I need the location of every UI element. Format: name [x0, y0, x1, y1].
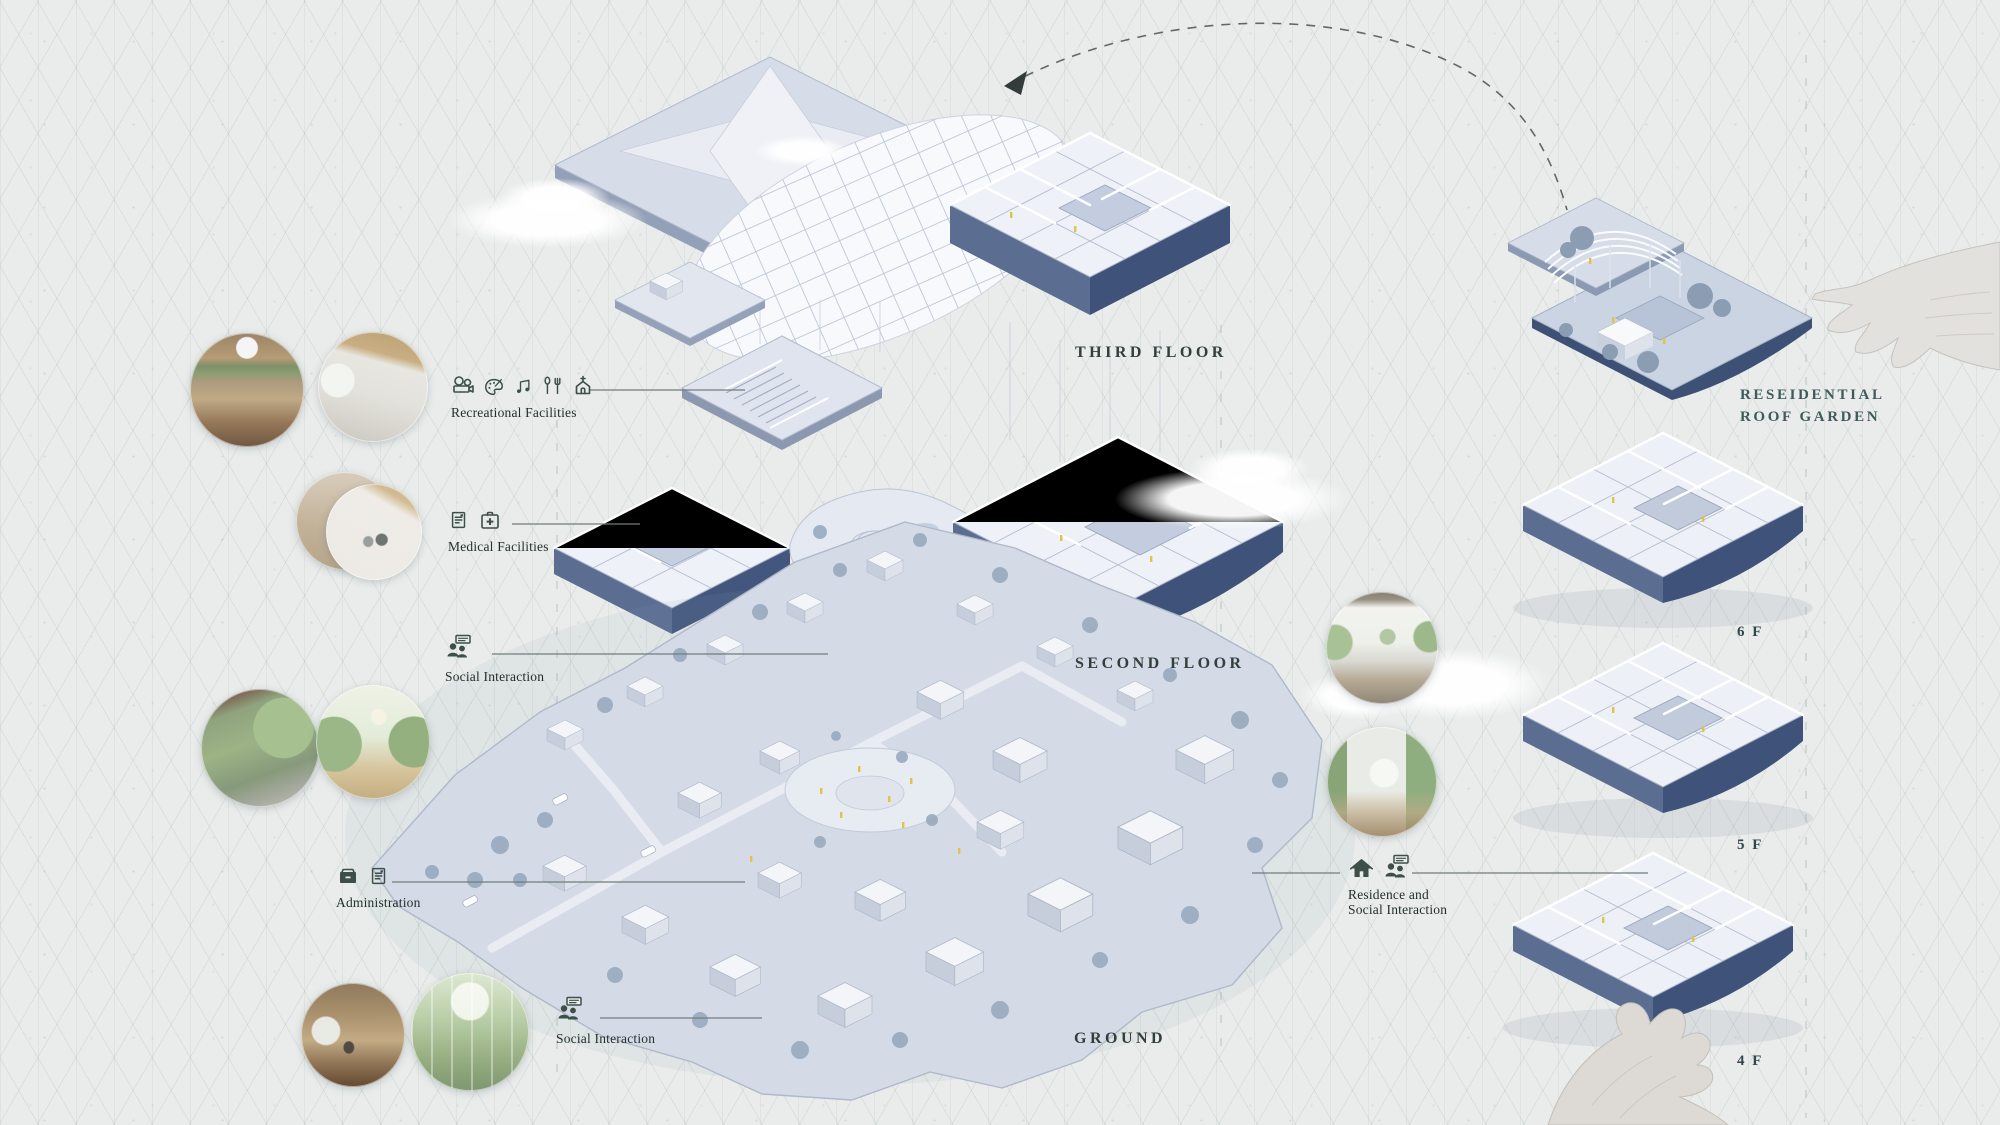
- cloud: [500, 178, 610, 218]
- legend-residence-line1: Residence and: [1348, 887, 1447, 902]
- photo-greenhouse: [411, 973, 529, 1091]
- legend-social-1-label: Social Interaction: [445, 669, 544, 685]
- dining-icon: [541, 374, 563, 398]
- legend-medical-label: Medical Facilities: [448, 539, 549, 555]
- building-artwork: [0, 0, 2000, 1125]
- photo-wood-lounge: [301, 983, 405, 1087]
- exploded-axonometric-diagram: THIRD FLOOR SECOND FLOOR GROUND RESEIDEN…: [0, 0, 2000, 1125]
- second-floor-title: SECOND FLOOR: [1075, 655, 1245, 673]
- photo-bedroom: [1327, 727, 1437, 837]
- photo-music-room: [190, 333, 304, 447]
- music-notes-icon: [513, 376, 533, 398]
- legend-residence-line2: Social Interaction: [1348, 902, 1447, 917]
- legend-social-2-icons: [556, 1000, 655, 1024]
- legend-administration-icons: [336, 864, 421, 888]
- legend-medical: Medical Facilities: [448, 508, 549, 555]
- arrowhead-icon: [1004, 71, 1027, 95]
- legend-social-1-icons: [445, 638, 544, 662]
- legend-recreational: Recreational Facilities: [451, 374, 595, 421]
- house-icon: [1348, 855, 1375, 882]
- photo-lantern-garden: [316, 685, 430, 799]
- palette-icon: [483, 376, 505, 398]
- legend-administration: Administration: [336, 864, 421, 911]
- first-aid-kit-icon: [478, 508, 502, 532]
- pointing-hand: [1812, 242, 2000, 370]
- ground-title: GROUND: [1074, 1030, 1166, 1048]
- cloud: [755, 136, 850, 166]
- photo-gallery: [318, 332, 428, 442]
- legend-recreational-icons: [451, 374, 595, 398]
- legend-social-2: Social Interaction: [556, 1000, 655, 1047]
- level-plate-4f: [1503, 853, 1803, 1048]
- roof-garden-plate: [1508, 198, 1812, 400]
- chapel-icon: [571, 374, 595, 398]
- cloud: [1190, 448, 1310, 490]
- level-label-4f: 4 F: [1737, 1053, 1763, 1070]
- medical-report-icon: [448, 508, 470, 532]
- legend-social-1: Social Interaction: [445, 638, 544, 685]
- level-label-6f: 6 F: [1737, 624, 1763, 641]
- photo-living-room: [1326, 592, 1438, 704]
- archive-drawer-icon: [336, 864, 360, 888]
- roof-garden-title-line1: RESEIDENTIAL: [1740, 384, 1885, 406]
- legend-medical-icons: [448, 508, 549, 532]
- people-conversation-icon: [556, 994, 586, 1024]
- document-icon: [368, 864, 390, 888]
- legend-social-2-label: Social Interaction: [556, 1031, 655, 1047]
- third-floor-title: THIRD FLOOR: [1075, 344, 1227, 362]
- legend-residence-icons: [1348, 858, 1447, 882]
- third-floor-model: [555, 57, 1230, 478]
- legend-recreational-label: Recreational Facilities: [451, 405, 595, 421]
- level-label-5f: 5 F: [1737, 837, 1763, 854]
- level-plate-6f: [1513, 433, 1813, 628]
- legend-administration-label: Administration: [336, 895, 421, 911]
- people-conversation-icon: [445, 632, 475, 662]
- photo-courtyard: [201, 689, 319, 807]
- projector-icon: [451, 374, 475, 398]
- roof-garden-title: RESEIDENTIAL ROOF GARDEN: [1740, 384, 1885, 428]
- roof-garden-title-line2: ROOF GARDEN: [1740, 406, 1885, 428]
- people-conversation-icon: [1383, 852, 1413, 882]
- legend-residence: Residence and Social Interaction: [1348, 858, 1447, 917]
- photo-clinic: [326, 484, 422, 580]
- legend-residence-label: Residence and Social Interaction: [1348, 887, 1447, 917]
- level-plate-5f: [1513, 643, 1813, 838]
